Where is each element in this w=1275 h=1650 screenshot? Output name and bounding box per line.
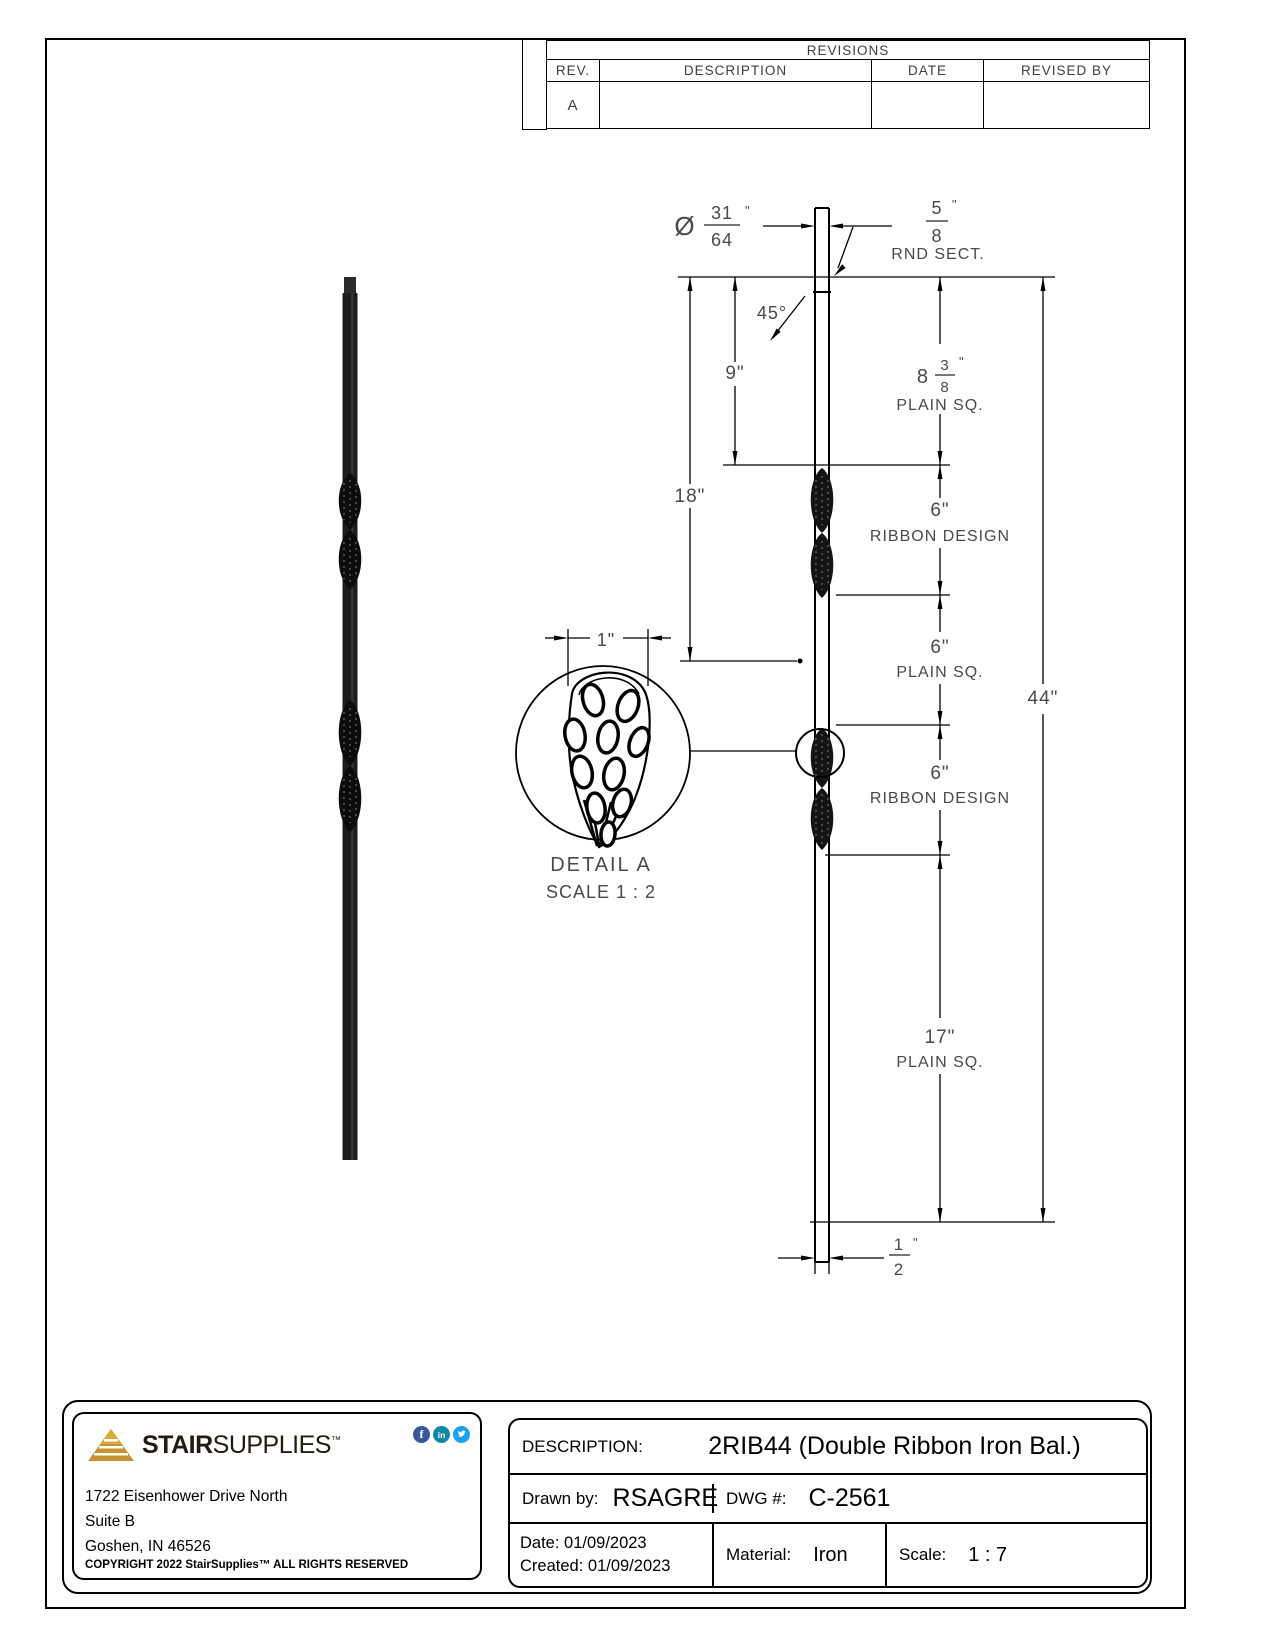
scale-value: 1 : 7 xyxy=(968,1544,1007,1567)
dimension-lines xyxy=(545,226,1055,1274)
dwg-number-cell: DWG #: C-2561 xyxy=(714,1484,1146,1513)
drawn-by-value: RSAGRE xyxy=(613,1484,719,1513)
plain-top-whole: 8 xyxy=(917,366,929,388)
company-address: 1722 Eisenhower Drive North Suite B Gosh… xyxy=(85,1484,287,1559)
ribbon1-label: RIBBON DESIGN xyxy=(870,528,1010,545)
baluster-photo-view xyxy=(339,277,362,1160)
plain-bottom-label: PLAIN SQ. xyxy=(896,1054,983,1071)
detail-a-scale: SCALE 1 : 2 xyxy=(546,882,656,902)
date-material-scale-row: Date: 01/09/2023 Created: 01/09/2023 Mat… xyxy=(510,1524,1146,1586)
drawn-by-cell: Drawn by: RSAGRE xyxy=(510,1484,714,1513)
address-line-3: Goshen, IN 46526 xyxy=(85,1534,287,1559)
material-cell: Material: Iron xyxy=(714,1524,887,1586)
ribbon-hole-pattern xyxy=(562,682,653,847)
detail-a-view xyxy=(516,666,690,847)
dim-ribbon2-value: 6" xyxy=(930,763,949,784)
twitter-icon xyxy=(453,1426,470,1443)
brand-bold: STAIR xyxy=(142,1431,213,1459)
rnd-numerator: 5 xyxy=(931,198,942,218)
linkedin-icon: in xyxy=(433,1426,450,1443)
created-value: 01/09/2023 xyxy=(588,1557,671,1575)
photo-ribbon-section-1 xyxy=(339,473,362,590)
plain-top-label: PLAIN SQ. xyxy=(896,397,983,414)
plain-mid-label: PLAIN SQ. xyxy=(896,664,983,681)
stairsupplies-logo: STAIRSUPPLIES™ xyxy=(88,1427,340,1463)
dwg-value: C-2561 xyxy=(808,1484,890,1513)
facebook-icon: f xyxy=(413,1426,430,1443)
material-label: Material: xyxy=(714,1545,791,1565)
rnd-unit-mark: " xyxy=(952,197,958,212)
created-label: Created: xyxy=(520,1557,583,1575)
ribbon2-label: RIBBON DESIGN xyxy=(870,790,1010,807)
stairsupplies-logo-icon xyxy=(88,1427,134,1463)
copyright-notice: COPYRIGHT 2022 StairSupplies™ ALL RIGHTS… xyxy=(85,1559,408,1571)
social-icons: f in xyxy=(413,1426,470,1443)
detail-width-dim: 1" xyxy=(597,630,615,650)
dim-18in: 18" xyxy=(675,486,706,507)
rnd-denominator: 8 xyxy=(931,226,942,246)
title-block-company: STAIRSUPPLIES™ f in 1722 Eisenhower Driv… xyxy=(72,1412,482,1580)
drawn-by-label: Drawn by: xyxy=(510,1489,599,1509)
dia-denominator: 64 xyxy=(711,230,733,250)
scale-label: Scale: xyxy=(887,1545,946,1565)
address-line-1: 1722 Eisenhower Drive North xyxy=(85,1484,287,1509)
date-value: 01/09/2023 xyxy=(564,1534,647,1552)
title-block-info: DESCRIPTION: 2RIB44 (Double Ribbon Iron … xyxy=(508,1418,1148,1588)
detail-a-title: DETAIL A xyxy=(550,854,652,876)
photo-ribbon-section-2 xyxy=(339,700,362,832)
address-line-2: Suite B xyxy=(85,1509,287,1534)
leader-dot xyxy=(798,659,803,664)
dim-plain-mid-value: 6" xyxy=(930,637,949,658)
drawn-dwg-row: Drawn by: RSAGRE DWG #: C-2561 xyxy=(510,1475,1146,1524)
dia-unit-mark: " xyxy=(745,203,751,218)
plain-top-numerator: 3 xyxy=(940,357,949,374)
dim-overall-44in: 44" xyxy=(1028,688,1059,709)
description-value: 2RIB44 (Double Ribbon Iron Bal.) xyxy=(643,1432,1146,1461)
dim-ribbon1-value: 6" xyxy=(930,500,949,521)
dim-plain-bottom-value: 17" xyxy=(925,1027,956,1048)
dim-9in: 9" xyxy=(725,363,744,384)
description-row: DESCRIPTION: 2RIB44 (Double Ribbon Iron … xyxy=(510,1420,1146,1475)
date-cell: Date: 01/09/2023 Created: 01/09/2023 xyxy=(510,1524,714,1586)
dwg-label: DWG #: xyxy=(714,1489,786,1509)
dia-numerator: 31 xyxy=(711,203,733,223)
rnd-sect-label: RND SECT. xyxy=(891,246,984,263)
drawing-sheet: REVISIONS REV. DESCRIPTION DATE REVISED … xyxy=(0,0,1275,1650)
brand-regular: SUPPLIES xyxy=(213,1431,331,1459)
brand-tm: ™ xyxy=(331,1435,341,1446)
half-numerator: 1 xyxy=(894,1235,904,1254)
date-label: Date: xyxy=(520,1534,559,1552)
half-denominator: 2 xyxy=(894,1260,904,1279)
material-value: Iron xyxy=(813,1544,847,1567)
plain-top-denominator: 8 xyxy=(940,379,949,396)
half-unit-mark: " xyxy=(913,1235,919,1250)
chamfer-angle-label: 45° xyxy=(757,303,787,323)
dia-symbol: Ø xyxy=(674,211,695,241)
scale-cell: Scale: 1 : 7 xyxy=(887,1524,1146,1586)
plain-top-unit-mark: " xyxy=(959,354,965,369)
brand-wordmark: STAIRSUPPLIES™ xyxy=(142,1431,340,1460)
description-label: DESCRIPTION: xyxy=(510,1437,643,1457)
